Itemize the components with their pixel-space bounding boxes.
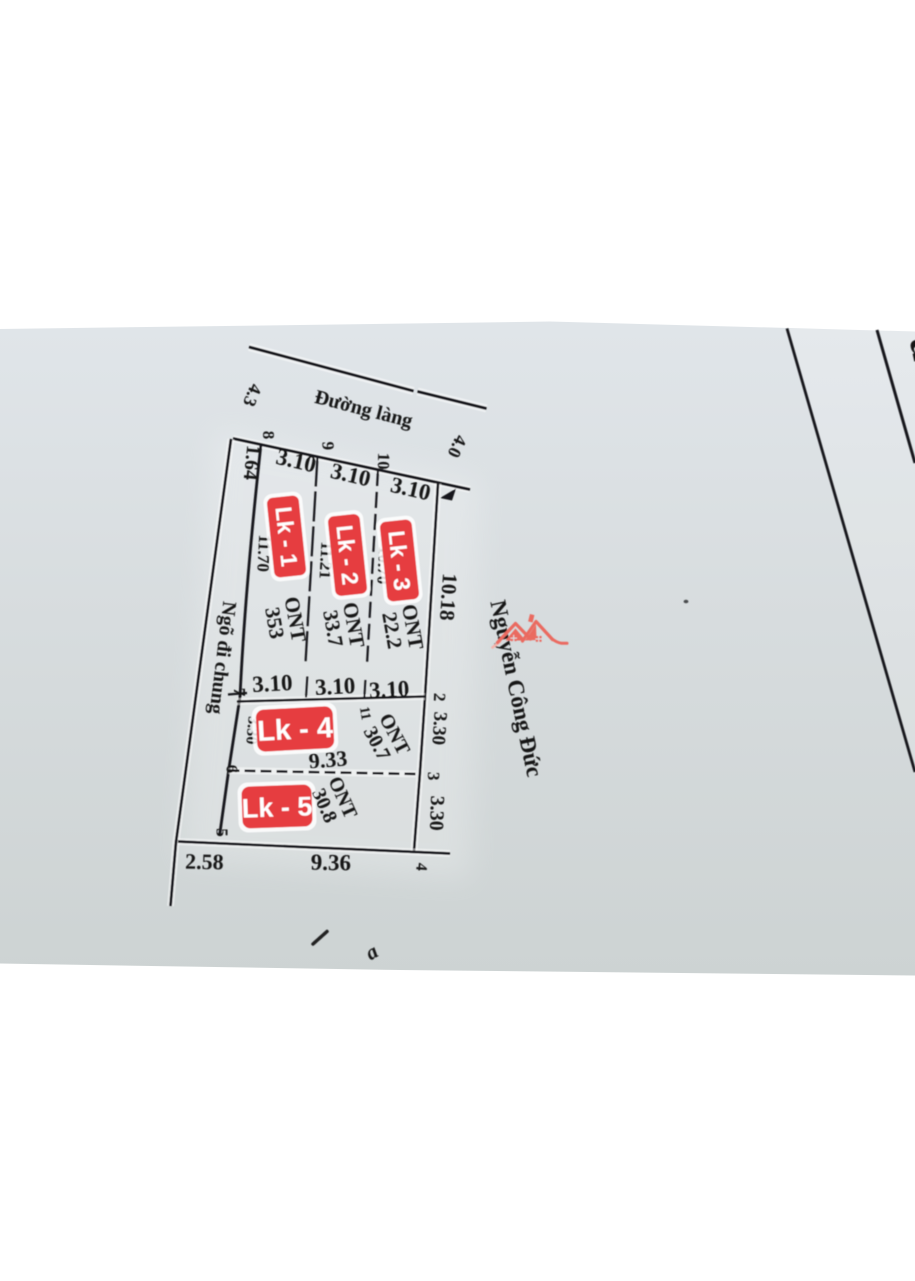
svg-text:10.18: 10.18 [435,573,462,622]
svg-text:9.36: 9.36 [311,850,352,876]
svg-text:2.58: 2.58 [185,849,224,875]
svg-text:1.64: 1.64 [239,444,265,481]
svg-text:3.10: 3.10 [252,670,294,697]
svg-text:10: 10 [374,452,394,470]
svg-text:4: 4 [412,862,430,871]
svg-text:11: 11 [356,706,373,722]
svg-text:5: 5 [213,828,232,837]
svg-text:Lk - 4: Lk - 4 [256,712,333,748]
svg-text:9: 9 [318,441,337,450]
svg-text:6: 6 [223,765,242,774]
svg-text:7: 7 [230,688,249,697]
svg-text:8: 8 [259,431,278,440]
svg-text:3.30: 3.30 [425,795,448,831]
svg-text:3: 3 [424,772,443,781]
svg-text:Lk - 5: Lk - 5 [241,791,313,823]
svg-text:2: 2 [430,693,449,702]
svg-text:3.10: 3.10 [314,673,356,700]
svg-text:3.30: 3.30 [427,711,450,746]
svg-text:3.10: 3.10 [368,676,410,703]
